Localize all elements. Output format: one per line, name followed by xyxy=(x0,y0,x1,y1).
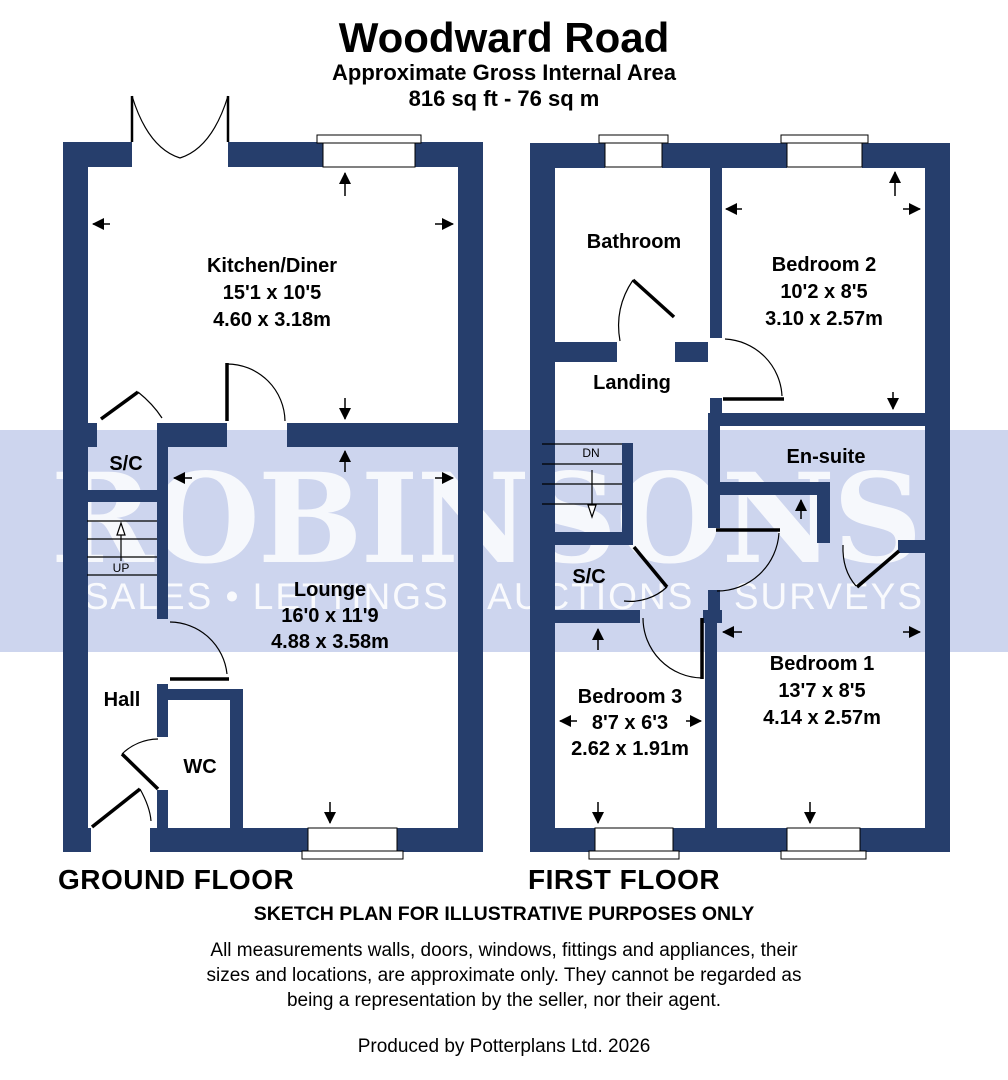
room-label-sc-gf: S/C xyxy=(95,451,157,478)
ensuite-door-leaf xyxy=(857,551,899,587)
disclaimer-line: sizes and locations, are approximate onl… xyxy=(0,963,1008,988)
bathroom-door-arc xyxy=(619,280,633,341)
bathroom-door-leaf xyxy=(633,280,674,317)
sc-door-arc-ff xyxy=(624,587,667,601)
room-label-sc-ff: S/C xyxy=(558,564,620,591)
sc-door-leaf-ff xyxy=(634,547,667,587)
room-name: Lounge xyxy=(200,577,460,603)
room-label-wc: WC xyxy=(168,754,232,781)
room-name: Kitchen/Diner xyxy=(142,253,402,280)
room-name: Hall xyxy=(82,687,162,714)
disclaimer-line: All measurements walls, doors, windows, … xyxy=(0,938,1008,963)
ground-floor-windows xyxy=(302,135,421,859)
room-name: WC xyxy=(168,754,232,781)
french-door-arcs xyxy=(132,96,228,158)
room-name: S/C xyxy=(95,451,157,478)
stairs-dn-label: DN xyxy=(576,447,606,459)
room-dims-m: 4.14 x 2.57m xyxy=(692,705,952,732)
front-door-arc xyxy=(140,789,151,821)
room-label-hall: Hall xyxy=(82,687,162,714)
room-label-lounge: Lounge 16'0 x 11'9 4.88 x 3.58m xyxy=(200,577,460,655)
floorplan-page: Woodward Road Approximate Gross Internal… xyxy=(0,0,1008,1080)
room-label-landing: Landing xyxy=(552,370,712,397)
room-name: Bedroom 2 xyxy=(694,252,954,279)
room-dims-ft: 13'7 x 8'5 xyxy=(692,678,952,705)
room-label-bedroom2: Bedroom 2 10'2 x 8'5 3.10 x 2.57m xyxy=(694,252,954,333)
room-name: Bathroom xyxy=(554,229,714,256)
wc-door-arc xyxy=(122,739,158,754)
room-dims-m: 3.10 x 2.57m xyxy=(694,306,954,333)
french-door-leaves xyxy=(132,96,228,142)
bedroom2-door-arc xyxy=(725,339,782,396)
stairs-up-label: UP xyxy=(106,562,136,574)
disclaimer-line: being a representation by the seller, no… xyxy=(0,988,1008,1013)
room-name: Landing xyxy=(552,370,712,397)
disclaimer-title: SKETCH PLAN FOR ILLUSTRATIVE PURPOSES ON… xyxy=(0,903,1008,926)
front-door-leaf xyxy=(92,789,140,827)
room-dims-ft: 15'1 x 10'5 xyxy=(142,280,402,307)
ground-floor-title: GROUND FLOOR xyxy=(58,864,294,896)
room-dims-ft: 10'2 x 8'5 xyxy=(694,279,954,306)
room-name: Bedroom 1 xyxy=(692,651,952,678)
kitchen-door-arc xyxy=(227,364,285,421)
room-name: S/C xyxy=(558,564,620,591)
room-dims-m: 2.62 x 1.91m xyxy=(500,736,760,762)
room-label-kitchen: Kitchen/Diner 15'1 x 10'5 4.60 x 3.18m xyxy=(142,253,402,334)
ground-floor-walls xyxy=(63,142,483,852)
room-label-bedroom1: Bedroom 1 13'7 x 8'5 4.14 x 2.57m xyxy=(692,651,952,732)
room-label-bathroom: Bathroom xyxy=(554,229,714,256)
room-dims-m: 4.60 x 3.18m xyxy=(142,307,402,334)
room-dims-m: 4.88 x 3.58m xyxy=(200,629,460,655)
ensuite-door-arc xyxy=(843,545,856,586)
sc-door-arc xyxy=(138,392,162,418)
first-floor-doors xyxy=(619,280,899,679)
producer-credit: Produced by Potterplans Ltd. 2026 xyxy=(0,1036,1008,1058)
first-floor-title: FIRST FLOOR xyxy=(528,864,720,896)
bedroom1-door-arc xyxy=(717,533,779,591)
room-name: En-suite xyxy=(726,444,926,471)
sc-door-leaf xyxy=(101,392,138,419)
room-dims-ft: 16'0 x 11'9 xyxy=(200,603,460,629)
wc-door-leaf xyxy=(122,754,158,789)
room-label-ensuite: En-suite xyxy=(726,444,926,471)
